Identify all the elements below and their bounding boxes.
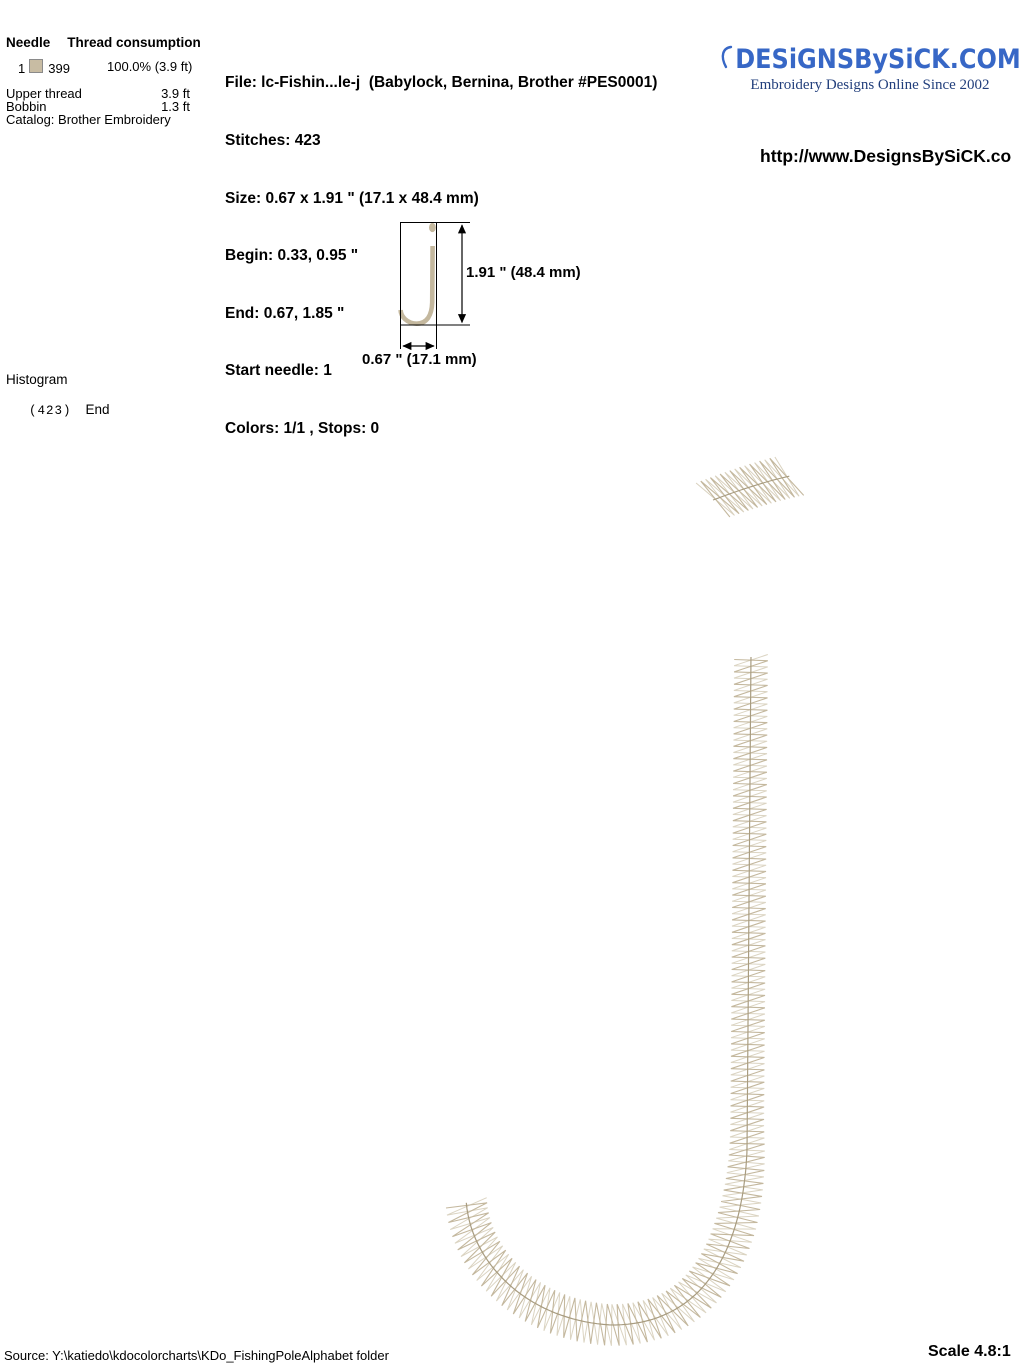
end-line: End: 0.67, 1.85 " [225, 304, 657, 323]
file-name-line: File: lc-Fishin...le-j (Babylock, Bernin… [225, 73, 657, 92]
col-thread-consumption: Thread consumption [67, 35, 201, 50]
website-url[interactable]: http://www.DesignsBySiCK.co [760, 146, 1011, 167]
letter-stitches-pass1 [446, 660, 768, 1346]
thread-usage: 100.0% (3.9 ft) [107, 59, 192, 74]
histogram-title: Histogram [6, 372, 68, 387]
stitches-line: Stitches: 423 [225, 131, 657, 150]
dot-stitches-pass2 [696, 457, 799, 515]
dot-stitches-pass1 [701, 458, 804, 517]
letter-stitch-spine [466, 657, 751, 1325]
scale-label: Scale 4.8:1 [928, 1343, 1011, 1361]
color-chart-page: NeedleThread consumption 1399 100.0% (3.… [0, 0, 1024, 1370]
histogram-row: (423) End [29, 402, 110, 418]
height-dimension-label: 1.91 " (48.4 mm) [466, 264, 581, 281]
begin-line: Begin: 0.33, 0.95 " [225, 246, 657, 265]
thread-color-swatch [29, 59, 43, 73]
thread-code: 399 [48, 61, 70, 76]
source-path: Source: Y:\katiedo\kdocolorcharts\KDo_Fi… [4, 1348, 389, 1363]
width-dimension-label: 0.67 " (17.1 mm) [362, 351, 477, 368]
colors-line: Colors: 1/1 , Stops: 0 [225, 419, 657, 438]
histogram-end-label: End [86, 402, 110, 417]
letter-stitches-pass2 [447, 655, 768, 1346]
thread-table-header: NeedleThread consumption [6, 35, 201, 50]
catalog-label: Catalog: Brother Embroidery [6, 112, 171, 127]
needle-number: 1 [18, 61, 25, 76]
col-needle: Needle [6, 35, 50, 50]
logo-text: DESiGNSBySiCK.COM [735, 43, 1021, 74]
thread-table-row: 1399 100.0% (3.9 ft) [18, 59, 198, 75]
histogram-stitch-count: (423) [29, 404, 72, 418]
file-info-block: File: lc-Fishin...le-j (Babylock, Bernin… [225, 35, 657, 477]
logo-flourish-icon [719, 45, 733, 74]
size-line: Size: 0.67 x 1.91 " (17.1 x 48.4 mm) [225, 189, 657, 208]
brand-block: DESiGNSBySiCK.COM Embroidery Designs Onl… [722, 45, 1018, 94]
logo-tagline: Embroidery Designs Online Since 2002 [722, 77, 1018, 94]
dot-stitch-spine [713, 476, 789, 500]
